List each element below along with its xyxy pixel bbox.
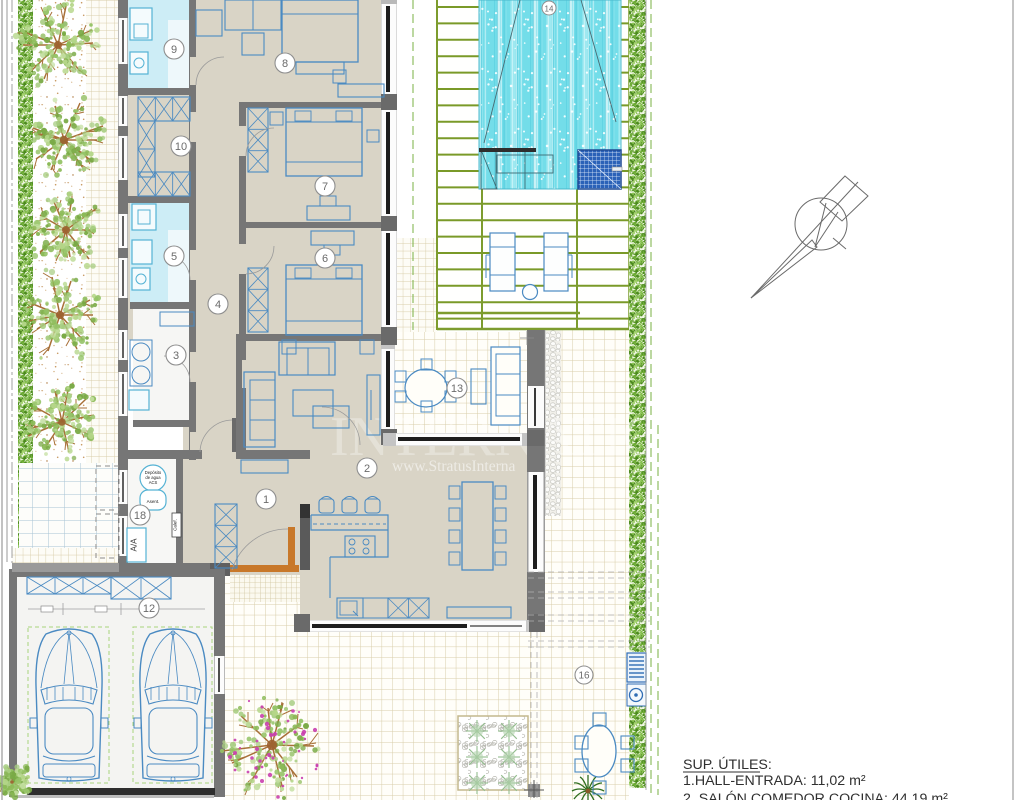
svg-text:2: 2 — [364, 463, 370, 475]
svg-text:www.StratusInterna: www.StratusInterna — [392, 458, 516, 475]
svg-text:9: 9 — [171, 44, 177, 56]
svg-text:1.HALL-ENTRADA: 11,02 m²: 1.HALL-ENTRADA: 11,02 m² — [683, 773, 866, 789]
svg-text:7: 7 — [322, 181, 328, 193]
svg-text:SUP. ÚTILES:: SUP. ÚTILES: — [683, 756, 772, 773]
svg-text:10: 10 — [175, 141, 187, 153]
svg-text:6: 6 — [322, 253, 328, 265]
svg-text:Asent.: Asent. — [147, 499, 160, 504]
svg-text:18: 18 — [134, 510, 146, 522]
svg-text:1: 1 — [263, 494, 269, 506]
svg-text:14: 14 — [545, 5, 554, 14]
svg-text:12: 12 — [143, 603, 155, 615]
svg-text:4: 4 — [215, 299, 221, 311]
svg-text:16: 16 — [578, 671, 590, 682]
svg-text:13: 13 — [451, 383, 463, 395]
svg-text:5: 5 — [171, 251, 177, 263]
svg-text:2. SALÓN COMEDOR COCINA: 44,19: 2. SALÓN COMEDOR COCINA: 44,19 m² — [683, 790, 948, 800]
svg-text:3: 3 — [173, 350, 179, 362]
svg-text:Calef.: Calef. — [173, 519, 178, 531]
svg-text:8: 8 — [282, 58, 288, 70]
svg-text:ACS: ACS — [149, 480, 158, 485]
svg-text:A/A: A/A — [130, 538, 139, 552]
